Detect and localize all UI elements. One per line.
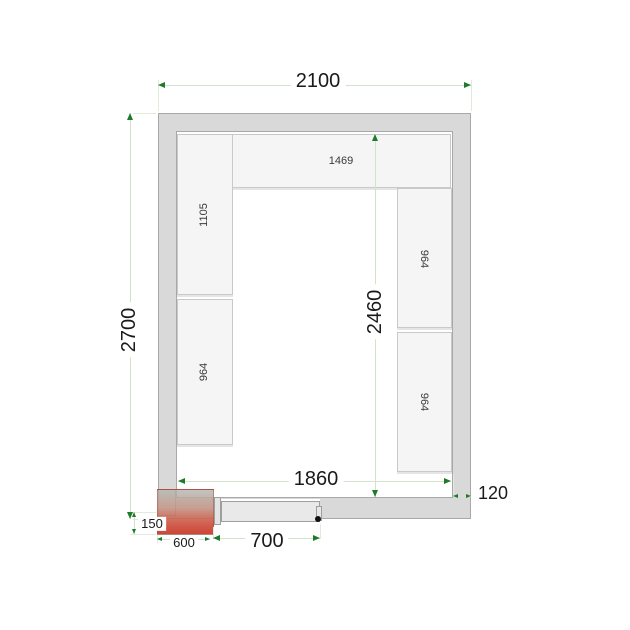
dim-arrow — [466, 494, 471, 498]
dim-label-inner-width: 1860 — [289, 468, 344, 490]
dim-arrow — [313, 535, 320, 541]
dim-arrow — [453, 494, 458, 498]
extension-line — [133, 113, 156, 114]
shelf-left-upper-label: 1105 — [198, 203, 210, 227]
shelf-right-upper-label: 964 — [418, 250, 430, 268]
extension-line — [453, 474, 454, 494]
shelf-top-label: 1469 — [329, 155, 353, 167]
dim-arrow — [157, 537, 162, 541]
dim-arrow — [372, 490, 378, 497]
dim-label-outer-width: 2100 — [291, 70, 346, 92]
dim-arrow — [205, 537, 210, 541]
dim-arrow — [132, 529, 136, 534]
dim-label-wall-thickness: 120 — [473, 484, 513, 504]
dim-arrow — [158, 82, 165, 88]
dim-arrow — [444, 478, 451, 484]
dim-arrow — [178, 478, 185, 484]
dim-arrow — [372, 134, 378, 141]
dim-arrow — [127, 113, 133, 120]
shelf-right-lower-label: 964 — [418, 393, 430, 411]
shelf-left-lower-label: 964 — [198, 363, 210, 381]
extension-line — [320, 524, 321, 539]
dim-arrow — [132, 512, 136, 517]
dim-label-unit-width: 600 — [170, 536, 198, 550]
dim-label-door-width: 700 — [245, 530, 288, 552]
dim-label-inner-height: 2460 — [364, 285, 386, 340]
dim-label-outer-height: 2700 — [118, 303, 140, 358]
dim-arrow — [464, 82, 471, 88]
dim-arrow — [213, 535, 220, 541]
extension-line — [471, 80, 472, 111]
door-frame-left — [214, 497, 221, 525]
door-handle-dot — [315, 516, 321, 522]
extension-line — [130, 534, 156, 535]
dim-label-unit-protrusion: 150 — [138, 517, 166, 531]
door-panel — [221, 501, 320, 522]
floor-plan-drawing: 1469 1105 964 964 964 2100 2700 2460 186 — [0, 0, 630, 630]
